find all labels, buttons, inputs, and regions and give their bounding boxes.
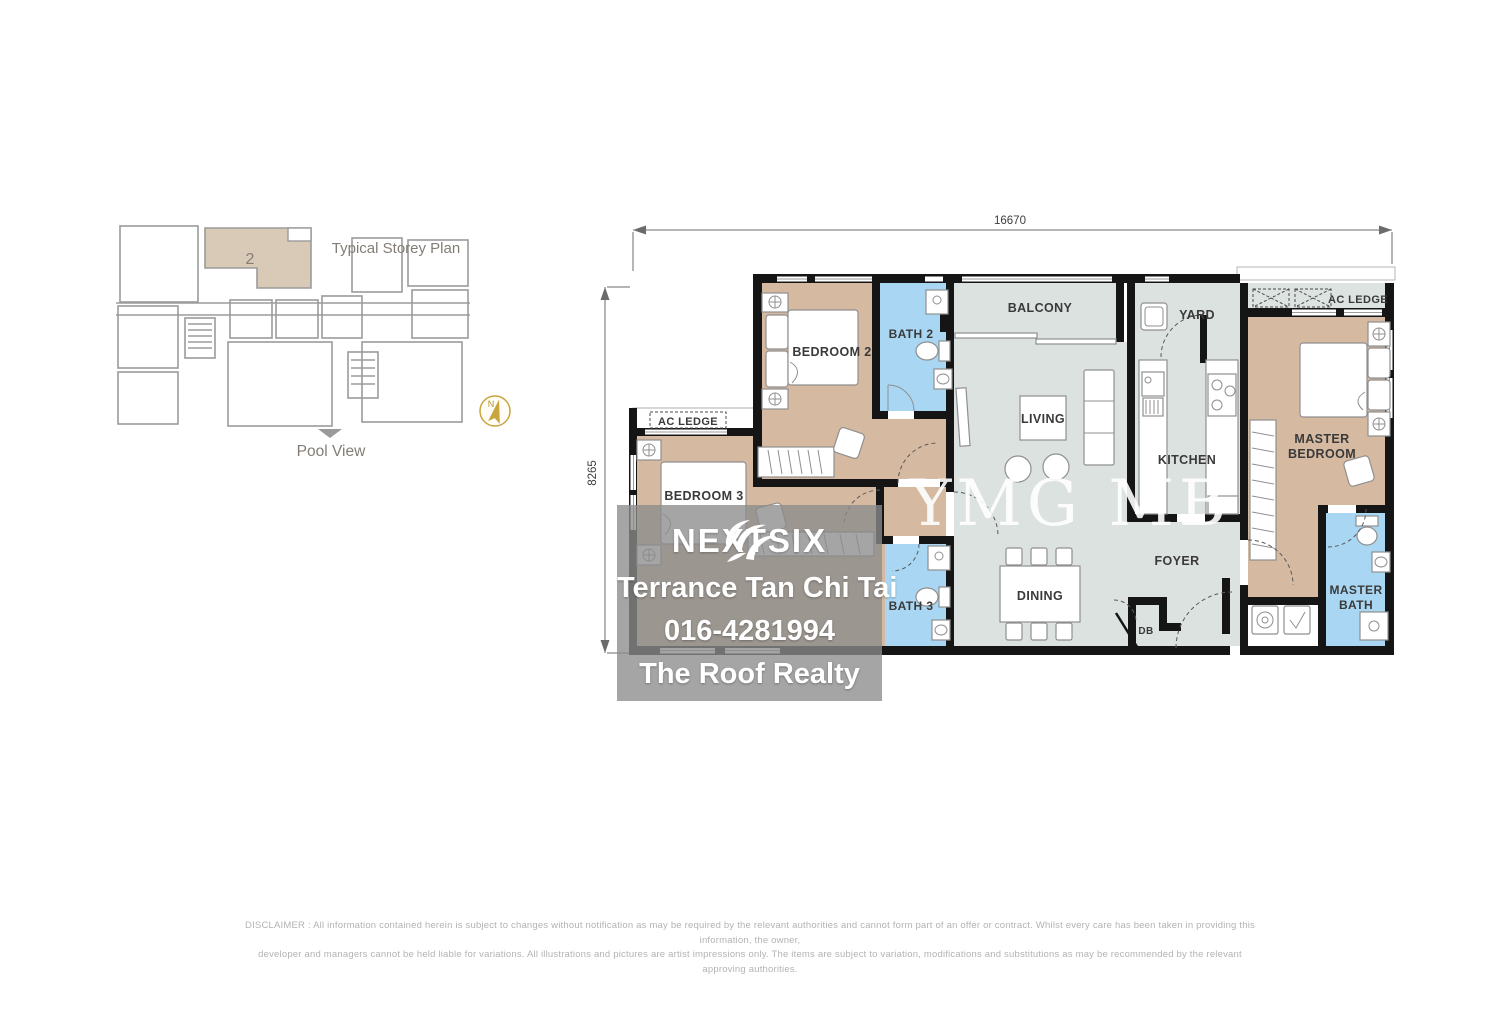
kitchen-label: KITCHEN [1158, 453, 1216, 467]
center-watermark: YMG MB [908, 467, 1231, 541]
dining-label: DINING [1017, 589, 1063, 603]
db-label: DB [1138, 626, 1153, 637]
foyer-label: FOYER [1154, 554, 1199, 568]
compass-icon: N [480, 396, 510, 426]
floor-plan-page: 2 Typical Storey Plan Pool View N [0, 0, 1500, 1011]
bedroom3-label: BEDROOM 3 [664, 489, 743, 503]
disclaimer-line2: developer and managers cannot be held li… [235, 948, 1265, 977]
ac-ledge-right-label: AC LEDGE [1328, 294, 1388, 306]
storey-plan-minimap: 2 Typical Storey Plan Pool View N [100, 210, 520, 470]
brand-row: NEXTSIX [617, 515, 882, 567]
dimension-width: 16670 [994, 215, 1026, 227]
master-bedroom-label-line1: MASTER [1294, 432, 1349, 446]
disclaimer: DISCLAIMER : All information contained h… [0, 919, 1500, 977]
unit-number-label: 2 [246, 251, 255, 268]
bedroom2-label: BEDROOM 2 [792, 345, 871, 359]
master-bath-label-line2: BATH [1339, 598, 1373, 612]
dimension-depth: 8265 [587, 460, 599, 486]
bedroom2-furniture [758, 293, 865, 477]
storey-plan-title: Typical Storey Plan [332, 240, 460, 257]
nextsix-logo-icon [723, 518, 777, 564]
storey-plan-highlighted-unit: 2 [205, 228, 311, 288]
bath2-label: BATH 2 [889, 327, 934, 341]
agent-phone: 016-4281994 [617, 610, 882, 653]
roof-ledge-strip [1237, 267, 1395, 280]
pool-view-label: Pool View [297, 443, 366, 460]
pool-view-marker: Pool View [297, 429, 366, 460]
agent-company: The Roof Realty [617, 653, 882, 696]
agent-name: Terrance Tan Chi Tai [617, 567, 882, 610]
balcony-label: BALCONY [1008, 301, 1073, 315]
master-bath-label-line1: MASTER [1329, 583, 1382, 597]
yard-label: YARD [1179, 308, 1215, 322]
agent-watermark-overlay: NEXTSIX Terrance Tan Chi Tai 016-4281994… [617, 505, 882, 701]
master-bedroom-label-line2: BEDROOM [1288, 447, 1356, 461]
living-label: LIVING [1021, 412, 1065, 426]
disclaimer-line1: DISCLAIMER : All information contained h… [235, 919, 1265, 948]
compass-north-label: N [488, 399, 495, 409]
ac-ledge-left-label: AC LEDGE [658, 416, 718, 428]
